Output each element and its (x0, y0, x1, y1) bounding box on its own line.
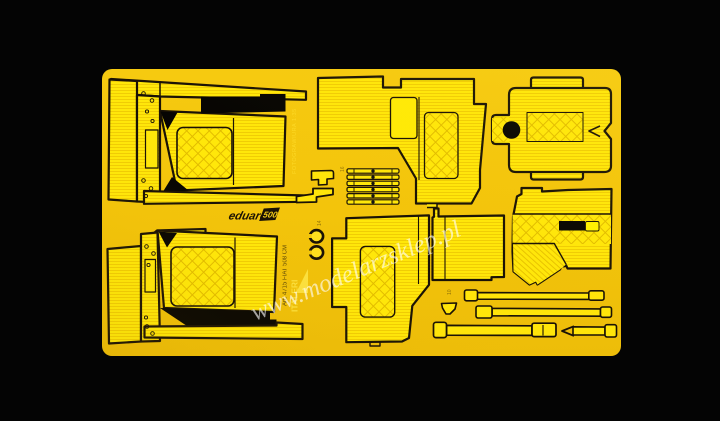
svg-text:14: 14 (317, 220, 323, 226)
svg-text:10: 10 (447, 289, 453, 295)
svg-text:16: 16 (340, 166, 346, 172)
